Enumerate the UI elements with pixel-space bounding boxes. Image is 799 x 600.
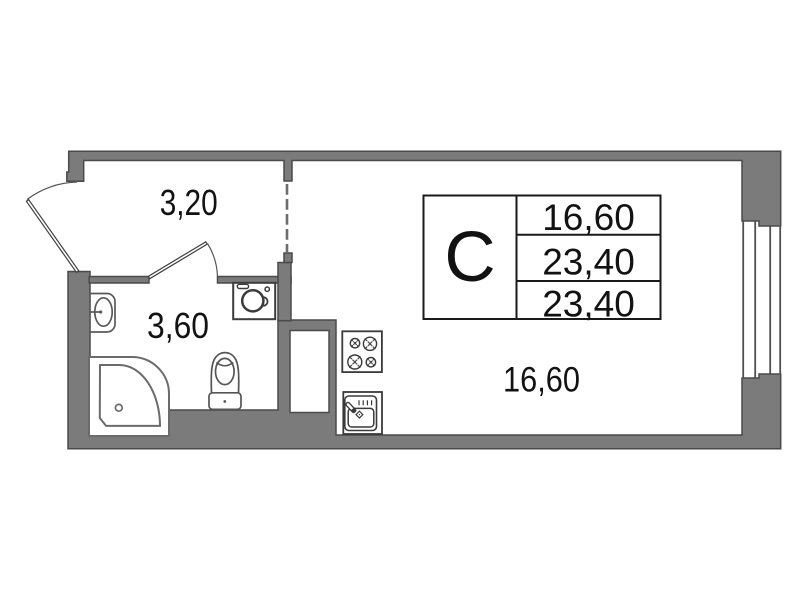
svg-text:3,20: 3,20 [160, 182, 218, 223]
svg-text:23,40: 23,40 [542, 242, 635, 283]
svg-text:16,60: 16,60 [503, 360, 580, 400]
svg-text:3,60: 3,60 [147, 305, 209, 346]
svg-text:23,40: 23,40 [542, 284, 635, 325]
svg-text:С: С [444, 218, 495, 297]
svg-text:16,60: 16,60 [542, 197, 635, 238]
